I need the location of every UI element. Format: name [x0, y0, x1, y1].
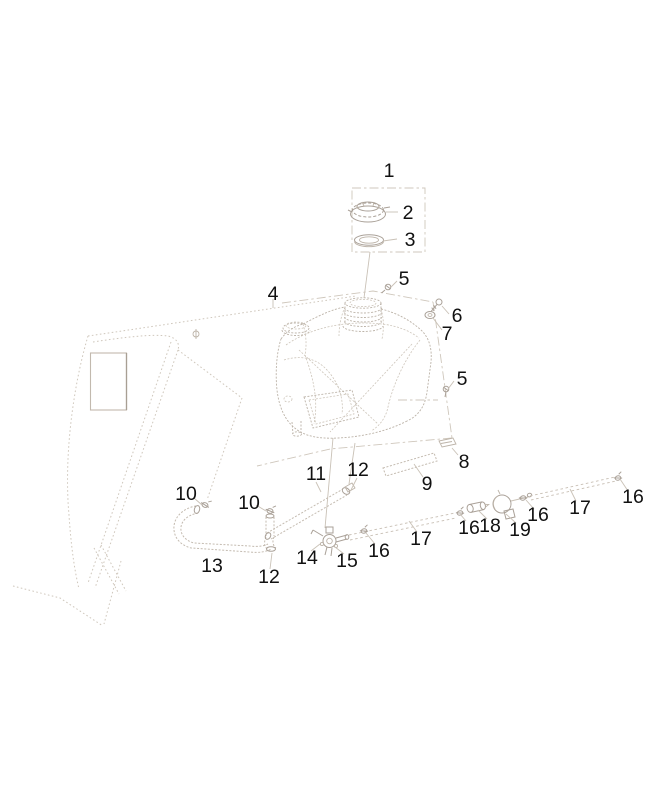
callout-2: 2 — [403, 202, 414, 224]
diagram-artwork: 1235467589111210101312141516171618191617… — [0, 0, 672, 789]
callout-16: 16 — [368, 540, 390, 562]
body-panel-drawing — [13, 296, 356, 626]
tank-bottom-recess — [304, 390, 359, 428]
cap-gasket-drawing — [355, 235, 384, 247]
parts-diagram-canvas: 1235467589111210101312141516171618191617… — [0, 0, 672, 789]
callout-17: 17 — [410, 528, 432, 550]
callout-12: 12 — [347, 459, 369, 481]
elbow-and-grommet-12-lower — [265, 514, 276, 551]
tank-contours — [284, 307, 420, 432]
hose-clamp-10-left — [200, 498, 212, 509]
callout-5: 5 — [457, 368, 468, 390]
tank-outlet-spigot — [284, 396, 302, 436]
filler-neck-threads — [343, 298, 383, 332]
callout-4: 4 — [268, 283, 279, 305]
callout-9: 9 — [422, 473, 433, 495]
callout-15: 15 — [336, 550, 358, 572]
callout-12: 12 — [258, 566, 280, 588]
washer-7 — [425, 312, 435, 319]
panel-clip-detail — [193, 329, 199, 339]
panel-cutout-rect — [91, 353, 127, 410]
clamp-16-c — [518, 493, 532, 501]
callout-16: 16 — [622, 486, 644, 508]
callout-5: 5 — [399, 268, 410, 290]
fuel-cap-drawing — [348, 202, 390, 222]
screw-5-upper — [382, 284, 391, 293]
inline-valve-18 — [466, 501, 489, 513]
callout-6: 6 — [452, 305, 463, 327]
callout-labels: 1235467589111210101312141516171618191617… — [175, 160, 644, 588]
callout-18: 18 — [479, 515, 501, 537]
tank-to-valve-line — [325, 438, 333, 528]
clip-8 — [439, 438, 456, 447]
callout-10: 10 — [175, 483, 197, 505]
clamp-16-d — [613, 472, 623, 481]
callout-16: 16 — [527, 504, 549, 526]
callout-11: 11 — [306, 463, 326, 485]
leader-lines — [194, 212, 628, 569]
callout-17: 17 — [569, 497, 591, 519]
callout-7: 7 — [442, 323, 453, 345]
hose-11 — [264, 489, 347, 540]
callout-8: 8 — [459, 451, 470, 473]
callout-1: 1 — [384, 160, 395, 182]
callout-14: 14 — [296, 547, 318, 569]
callout-10: 10 — [238, 492, 260, 514]
callout-13: 13 — [201, 555, 223, 577]
hose-clamp-10-right — [265, 504, 276, 514]
callout-16: 16 — [458, 517, 480, 539]
fuel-tank-drawing — [276, 298, 431, 528]
callout-3: 3 — [405, 229, 416, 251]
screw-6 — [429, 298, 443, 313]
